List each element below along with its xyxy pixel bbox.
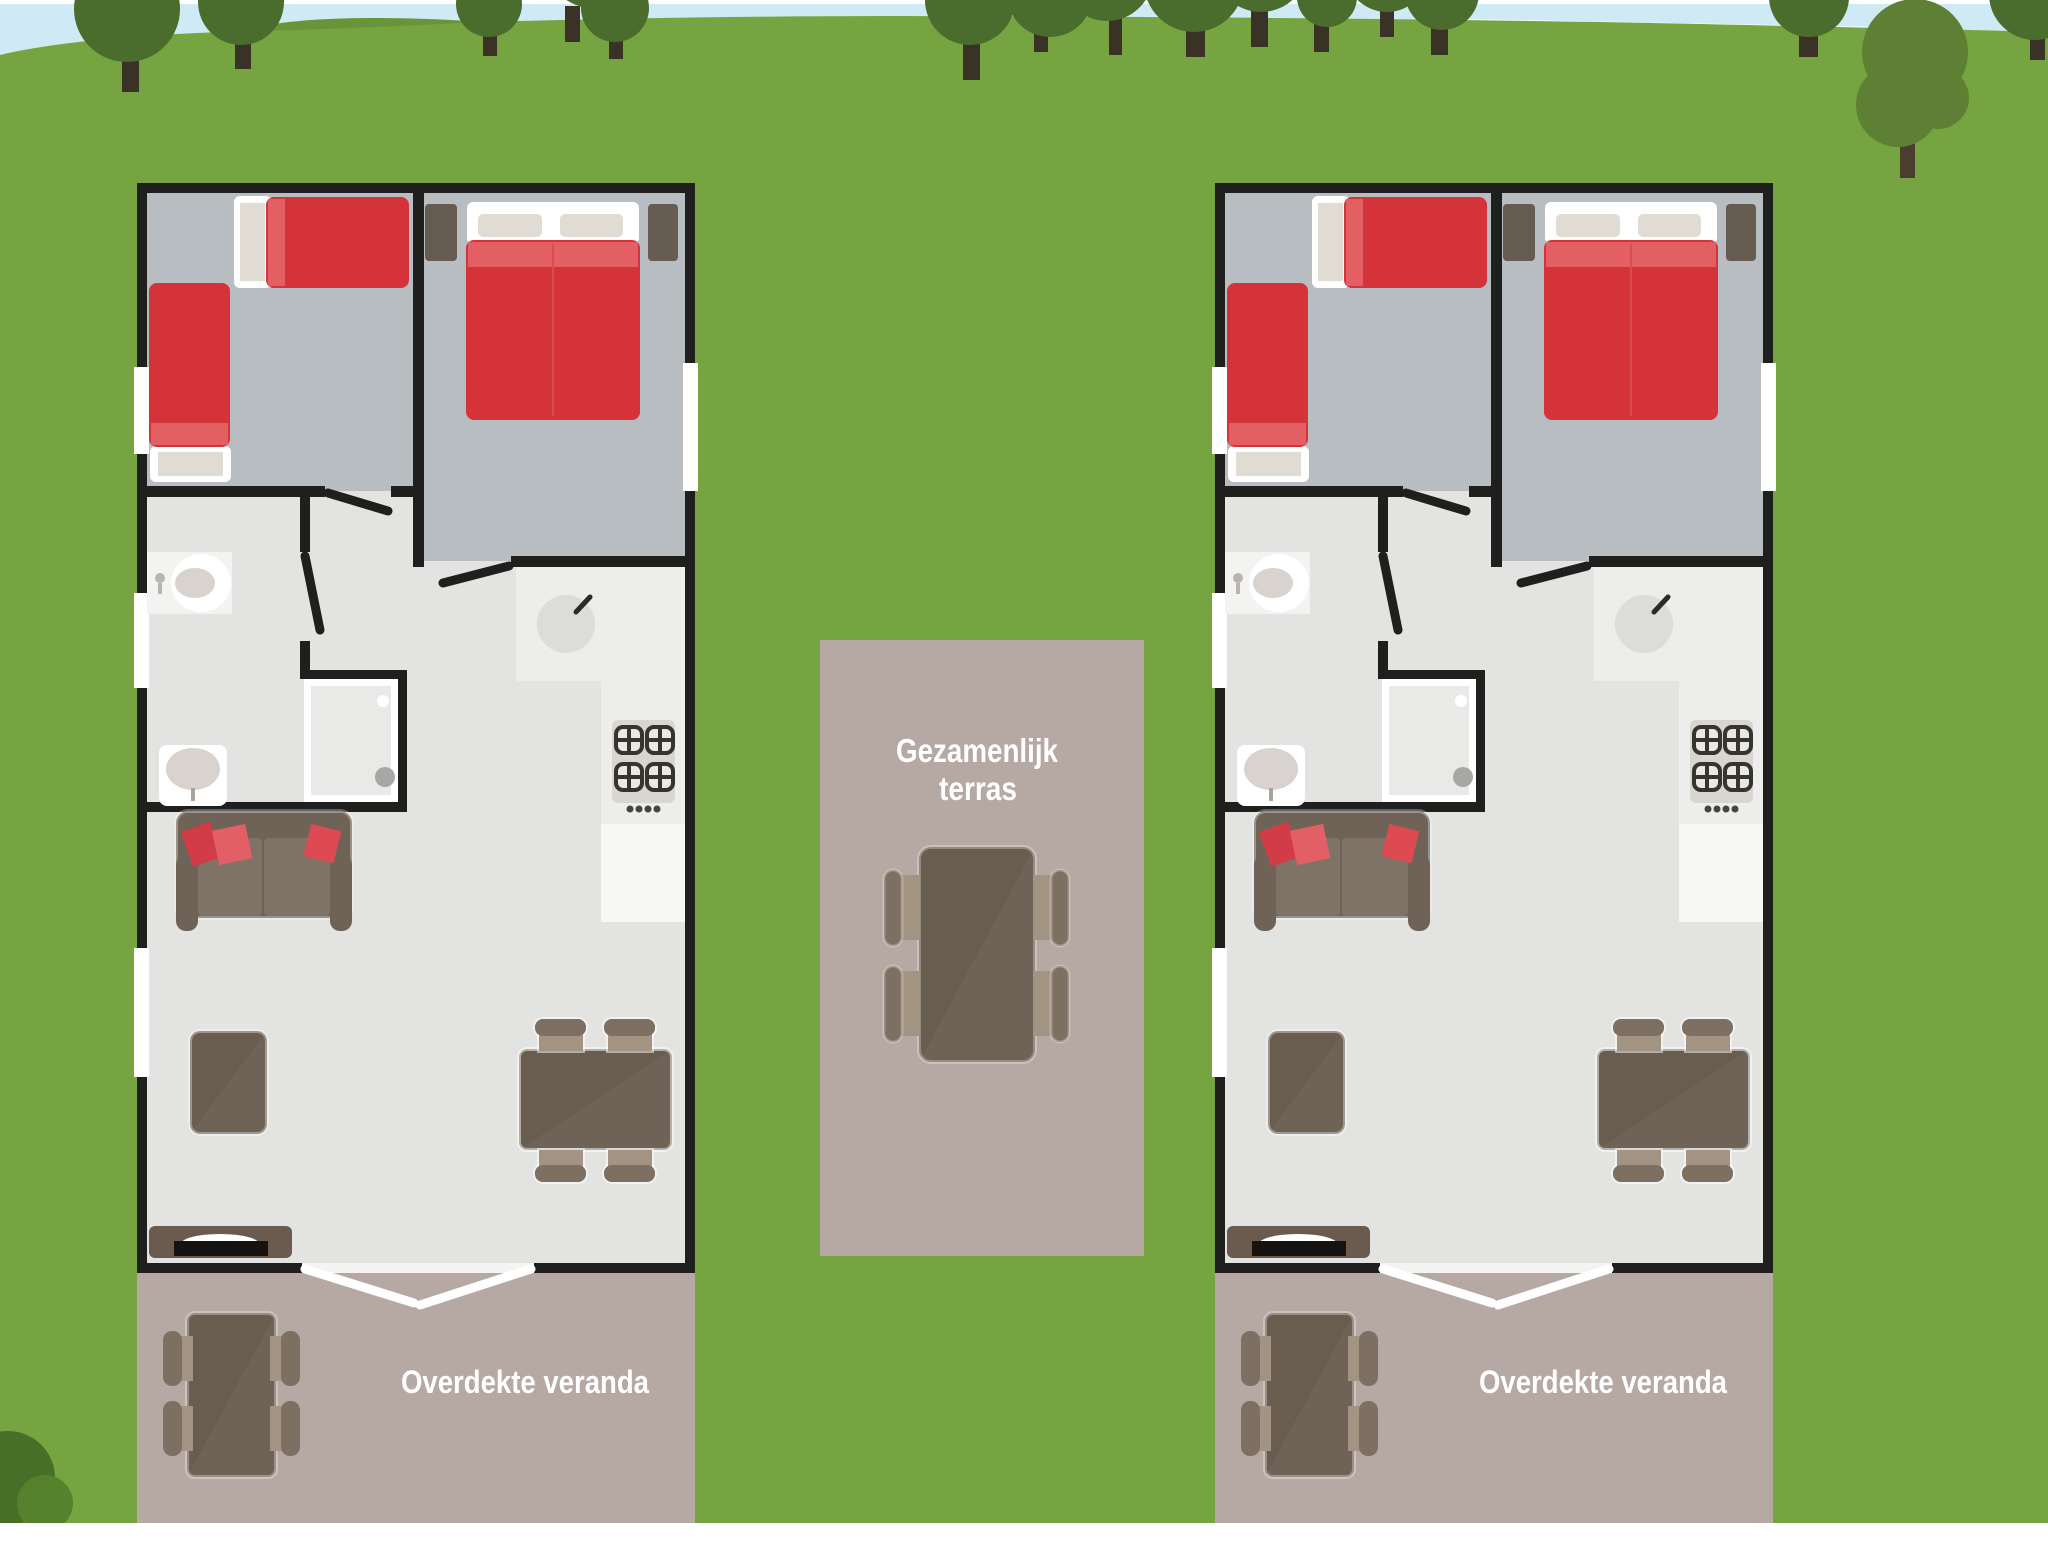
- svg-text:Gezamenlijk: Gezamenlijk: [896, 732, 1059, 769]
- svg-text:terras: terras: [939, 770, 1017, 807]
- svg-text:Overdekte veranda: Overdekte veranda: [1479, 1364, 1727, 1400]
- svg-text:Overdekte veranda: Overdekte veranda: [401, 1364, 649, 1400]
